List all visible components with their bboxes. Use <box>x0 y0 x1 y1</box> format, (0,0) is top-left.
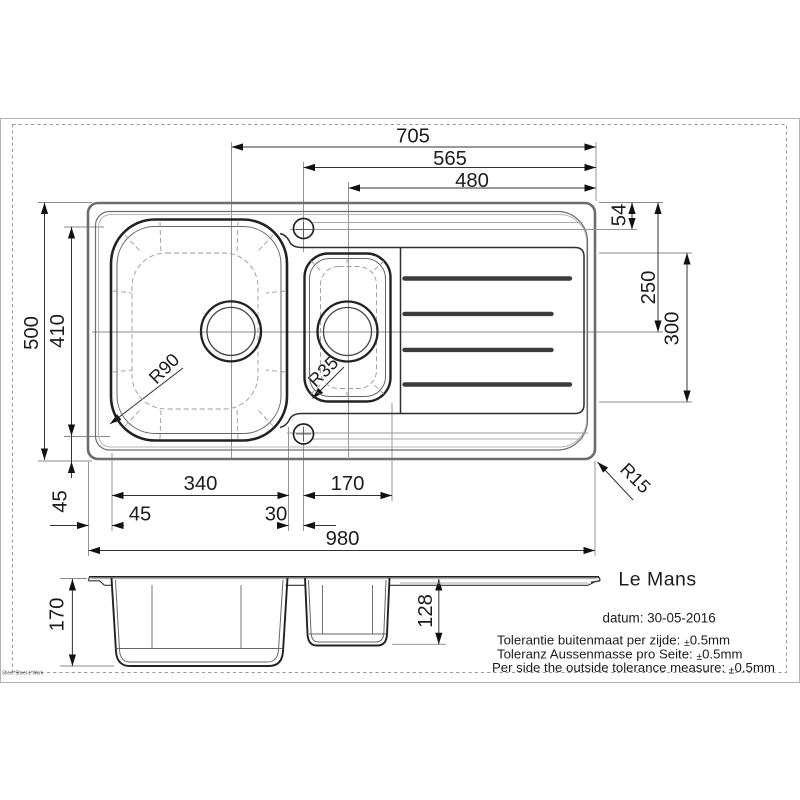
svg-text:128: 128 <box>415 594 437 628</box>
svg-text:250: 250 <box>638 271 660 305</box>
svg-text:datum: 30-05-2016: datum: 30-05-2016 <box>603 611 716 626</box>
svg-text:30: 30 <box>265 504 288 526</box>
svg-text:500: 500 <box>21 316 43 350</box>
svg-text:340: 340 <box>184 473 218 495</box>
svg-text:Sheet*Sheet-1*Work: Sheet*Sheet-1*Work <box>2 671 43 677</box>
svg-text:480: 480 <box>455 170 489 192</box>
svg-text:410: 410 <box>47 314 69 348</box>
svg-text:705: 705 <box>396 126 430 148</box>
svg-text:54: 54 <box>609 204 631 227</box>
svg-text:45: 45 <box>129 504 152 526</box>
svg-text:45: 45 <box>50 490 72 513</box>
svg-text:980: 980 <box>326 528 360 550</box>
svg-text:170: 170 <box>47 598 69 632</box>
svg-text:170: 170 <box>331 473 365 495</box>
svg-text:Le Mans: Le Mans <box>618 569 696 591</box>
svg-text:300: 300 <box>662 312 684 346</box>
svg-text:565: 565 <box>433 148 467 170</box>
